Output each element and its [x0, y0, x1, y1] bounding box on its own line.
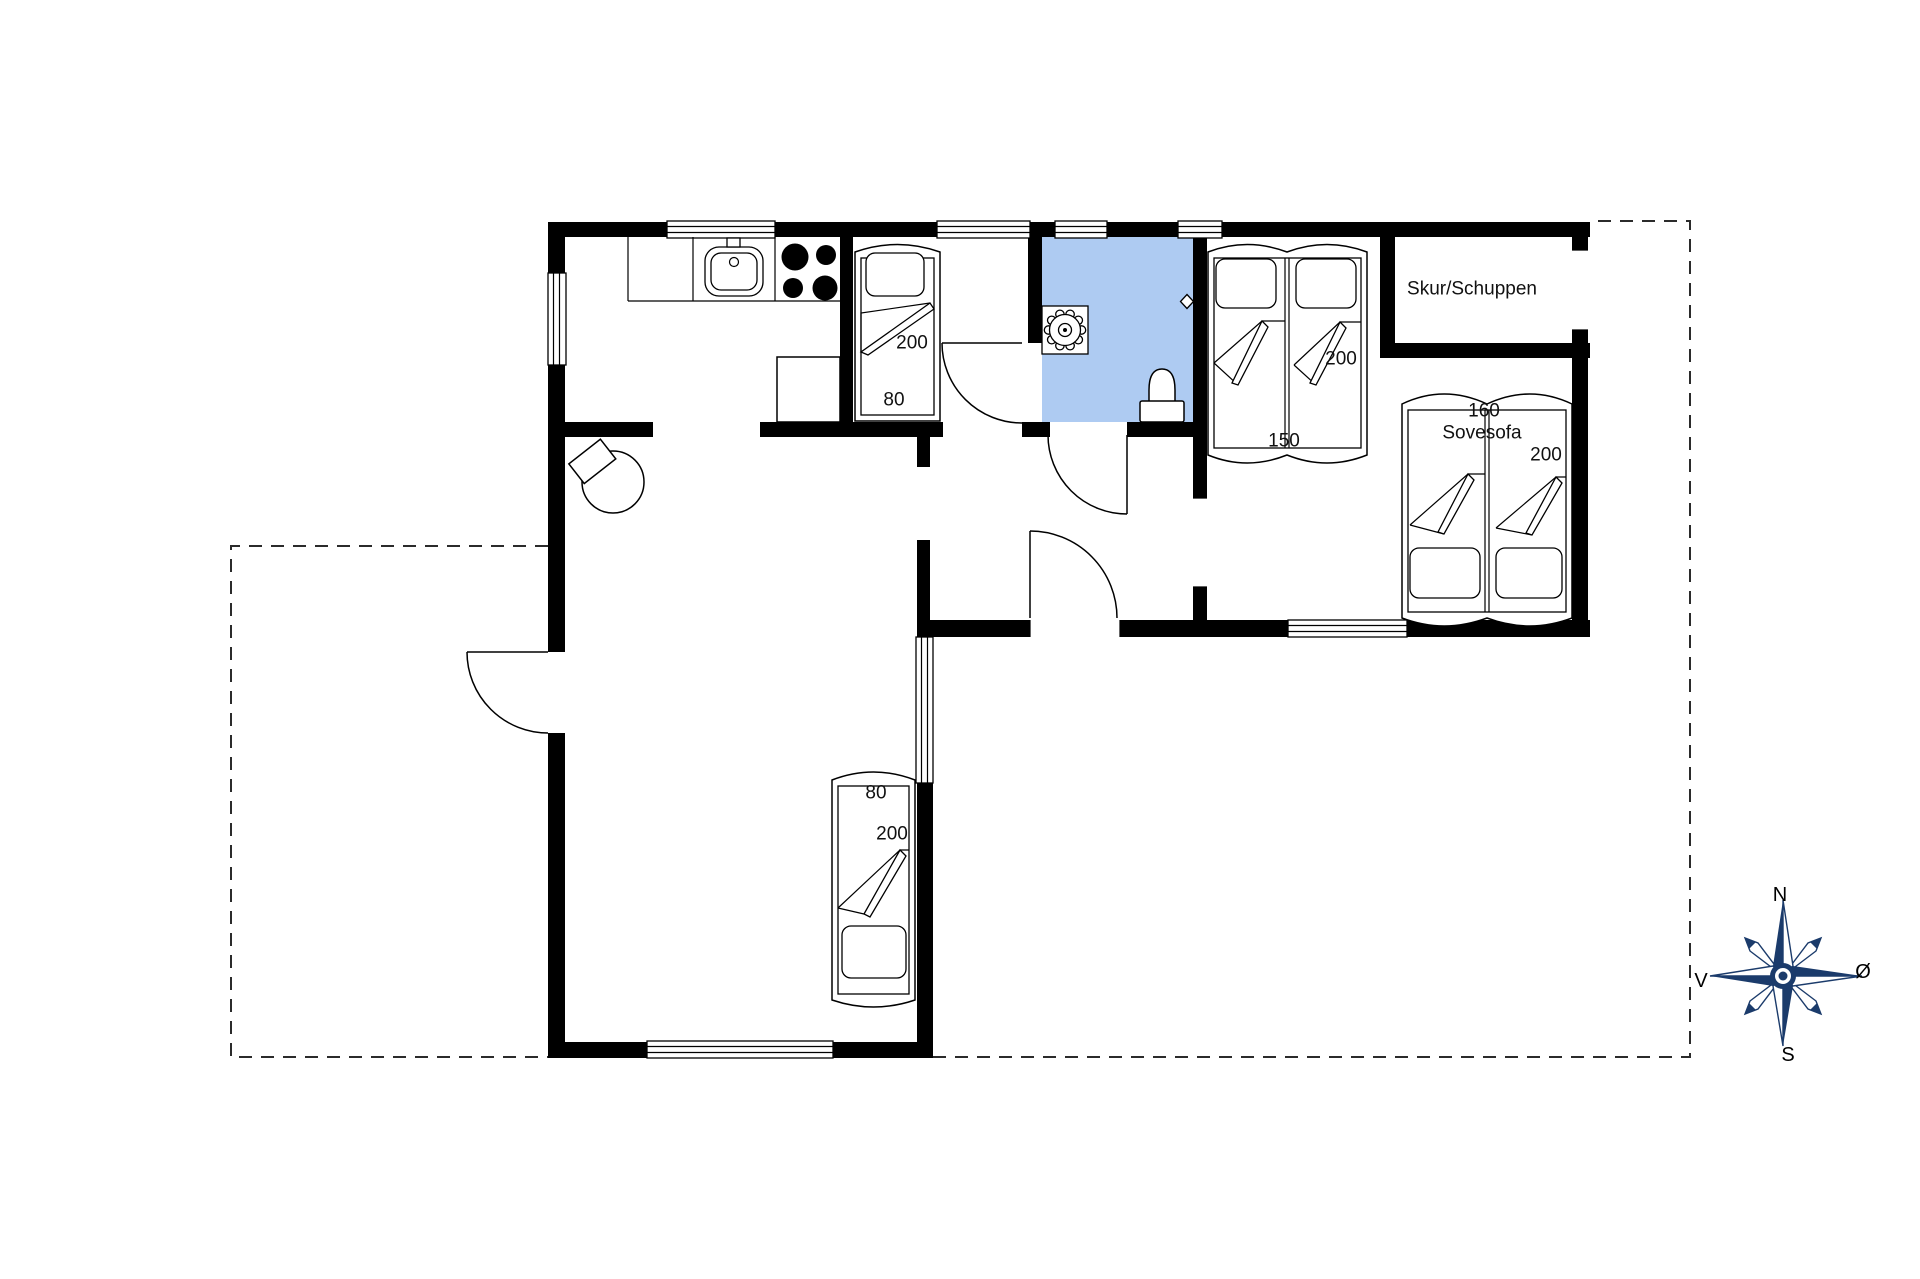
wall-bath-bottom-a — [1022, 422, 1050, 437]
wall-left-mid — [548, 365, 565, 652]
sofa-bed-name-label: Sovesofa — [1442, 424, 1521, 443]
compass-rose — [1710, 900, 1862, 1046]
wood-stove — [569, 439, 644, 513]
window-bedroom2-bottom — [1288, 620, 1407, 637]
wall-right — [1572, 330, 1588, 620]
shed-opening-edges — [1572, 250, 1588, 330]
wall-kitchen-bottom — [565, 422, 653, 437]
living-bed-width-label: 80 — [865, 784, 886, 803]
wall-left-upper — [548, 237, 565, 273]
wall-bath-right — [1193, 237, 1207, 422]
compass-south-label: S — [1781, 1045, 1794, 1065]
window-left-wall — [548, 273, 566, 365]
terrace-boundary-left — [231, 546, 548, 1057]
living-bed-length-label: 200 — [876, 825, 908, 844]
wall-mid-bottom-a — [917, 620, 1030, 637]
bedroom1-bed-length-label: 200 — [896, 334, 928, 353]
kitchen-sink — [705, 238, 763, 296]
wall-kitchen-bedroom1 — [840, 237, 853, 423]
wall-bottom-right-seg — [833, 1042, 933, 1058]
wall-bath-bottom-b — [1127, 422, 1207, 437]
kitchen — [628, 237, 842, 422]
wall-living-hall-a — [917, 437, 930, 467]
terrace-door — [1030, 531, 1120, 637]
entrance-door — [467, 652, 548, 733]
window-living-bottom — [647, 1041, 833, 1058]
bathroom-side-door — [942, 343, 1022, 423]
sofa-bed-length-label: 200 — [1530, 446, 1562, 465]
window-corridor — [937, 221, 1030, 238]
wall-shed-left — [1380, 237, 1395, 358]
washing-machine — [1042, 306, 1088, 354]
bedroom2-doorway — [1193, 498, 1207, 587]
compass-north-label: N — [1773, 885, 1787, 905]
compass-east-label: Ø — [1855, 962, 1871, 982]
wall-living-hall-b — [917, 540, 930, 620]
compass-west-label: V — [1694, 971, 1707, 991]
bathroom-hall-door — [1048, 435, 1127, 514]
floor-plan-drawing — [0, 0, 1920, 1279]
sofa-bed-width-label: 160 — [1468, 402, 1500, 421]
floor-plan: Skur/Schuppen 200 80 200 150 160 Sovesof… — [0, 0, 1920, 1279]
bed-living-room — [832, 772, 915, 1007]
window-bathroom — [1055, 221, 1107, 238]
wall-mid-bottom-b — [1120, 620, 1288, 637]
wall-bottom-left-seg — [548, 1042, 647, 1058]
window-kitchen — [667, 221, 775, 238]
bedroom2-bed-width-label: 150 — [1268, 432, 1300, 451]
wall-right-stub — [1572, 237, 1588, 250]
window-living-right — [916, 637, 933, 783]
shed-label: Skur/Schuppen — [1407, 280, 1537, 299]
kitchen-cabinet — [777, 357, 840, 422]
window-bedroom2 — [1178, 221, 1222, 238]
wall-bedroom1-bottom — [760, 422, 943, 437]
wall-hall-bedroom2-b — [1193, 587, 1207, 620]
bedroom1-bed-width-label: 80 — [883, 391, 904, 410]
wall-hall-bedroom2-a — [1193, 437, 1207, 498]
stove-burners — [782, 244, 838, 301]
wall-shed-bottom — [1380, 343, 1590, 358]
wall-bath-left — [1028, 237, 1042, 343]
wall-left-lower — [548, 733, 565, 1042]
wall-right-lower — [917, 783, 933, 1042]
bedroom2-bed-length-label: 200 — [1325, 350, 1357, 369]
